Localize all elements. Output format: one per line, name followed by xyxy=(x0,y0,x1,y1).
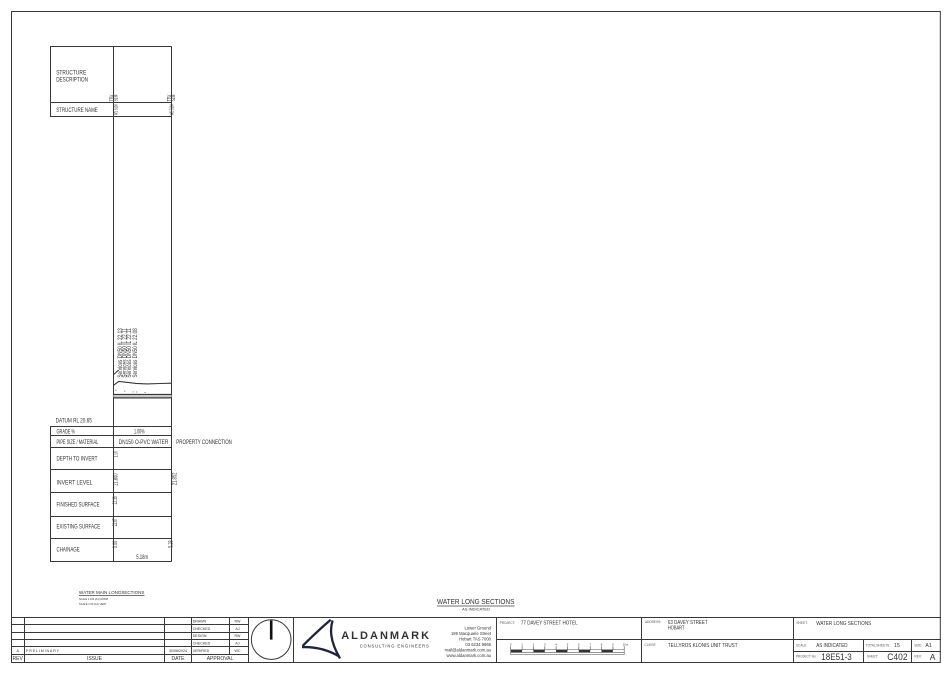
svg-text:W2 SLM: W2 SLM xyxy=(170,104,176,115)
svg-text:CLIENT:: CLIENT: xyxy=(644,643,656,647)
svg-text:AS INDICATED: AS INDICATED xyxy=(816,643,848,649)
svg-text:DATE: DATE xyxy=(172,656,186,662)
svg-text:SCALE 1:100 (A1) HORIZ: SCALE 1:100 (A1) HORIZ xyxy=(79,597,108,601)
svg-text:HOBART: HOBART xyxy=(668,625,685,631)
svg-text:DEPTH TO INVERT: DEPTH TO INVERT xyxy=(57,456,98,462)
svg-text:SHEET:: SHEET: xyxy=(796,621,807,625)
svg-text:77 DAVEY STREET HOTEL: 77 DAVEY STREET HOTEL xyxy=(521,620,578,626)
svg-text:SLM: SLM xyxy=(113,95,119,102)
svg-text:PROJECT:: PROJECT: xyxy=(500,621,516,625)
svg-text:WATER LONG SECTIONS: WATER LONG SECTIONS xyxy=(437,597,514,606)
svg-text:Hobart TAS 7000: Hobart TAS 7000 xyxy=(459,637,492,642)
svg-text:199 Macquarie Street: 199 Macquarie Street xyxy=(451,631,492,636)
svg-text:30/08/2024: 30/08/2024 xyxy=(169,649,187,653)
svg-text:Services DN50 IL 22.08: Services DN50 IL 22.08 xyxy=(133,328,139,378)
svg-text:VERIFIED: VERIFIED xyxy=(193,649,210,653)
svg-text:PIPE SIZE / MATERIAL: PIPE SIZE / MATERIAL xyxy=(57,440,99,446)
svg-text:REV:: REV: xyxy=(914,655,921,659)
svg-text:ADDRESS:: ADDRESS: xyxy=(645,620,661,624)
svg-text:A: A xyxy=(930,652,936,662)
svg-text:RW: RW xyxy=(235,634,242,638)
svg-text:RW: RW xyxy=(235,620,242,624)
svg-text:APPROVAL: APPROVAL xyxy=(207,656,234,662)
svg-text:PROJECT No:: PROJECT No: xyxy=(796,655,817,659)
svg-text:DESIGN: DESIGN xyxy=(193,634,207,638)
svg-text:SHEET:: SHEET: xyxy=(867,655,878,659)
svg-text:SLM: SLM xyxy=(171,95,177,102)
svg-text:INVERT LEVEL: INVERT LEVEL xyxy=(57,480,94,486)
svg-text:0.00: 0.00 xyxy=(113,540,119,548)
svg-text:5.18m: 5.18m xyxy=(136,555,148,561)
svg-text:SCALE 1:50 (A1) VERT: SCALE 1:50 (A1) VERT xyxy=(79,602,107,606)
svg-text:21.800: 21.800 xyxy=(113,473,119,486)
svg-text:TELLYROS KLONIS UNIT TRUST: TELLYROS KLONIS UNIT TRUST xyxy=(668,643,738,649)
svg-text:PROPERTY CONNECTION: PROPERTY CONNECTION xyxy=(176,440,232,446)
svg-text:DRAWN: DRAWN xyxy=(193,620,207,624)
svg-text:www.aldanmark.com.au: www.aldanmark.com.au xyxy=(447,653,492,658)
svg-text:AJ: AJ xyxy=(235,627,239,631)
svg-text:CHECKED: CHECKED xyxy=(193,642,211,646)
svg-text:AS INDICATED: AS INDICATED xyxy=(462,608,491,612)
svg-text:ISSUE: ISSUE xyxy=(87,656,103,662)
svg-text:15: 15 xyxy=(894,643,900,649)
svg-text:EXISTING SURFACE: EXISTING SURFACE xyxy=(57,524,101,530)
svg-text:PRELIMINARY: PRELIMINARY xyxy=(26,649,60,653)
svg-text:10m: 10m xyxy=(623,643,629,647)
svg-text:1.07: 1.07 xyxy=(114,450,120,457)
svg-text:REV: REV xyxy=(13,656,24,662)
svg-text:03 6234 9666: 03 6234 9666 xyxy=(465,642,491,647)
svg-text:18E51-3: 18E51-3 xyxy=(821,652,852,662)
svg-text:ALDANMARK: ALDANMARK xyxy=(341,630,431,642)
svg-text:TOTAL SHEETS:: TOTAL SHEETS: xyxy=(866,643,890,647)
svg-text:WATER LONG SECTIONS: WATER LONG SECTIONS xyxy=(816,621,871,627)
svg-text:WATER MAIN LONGSECTIONS: WATER MAIN LONGSECTIONS xyxy=(79,590,145,596)
svg-text:DATUM RL 20.65: DATUM RL 20.65 xyxy=(56,419,93,425)
svg-text:22.38: 22.38 xyxy=(113,496,119,504)
svg-text:5.18: 5.18 xyxy=(168,540,174,548)
svg-text:STRUCTURE NAME: STRUCTURE NAME xyxy=(56,108,98,114)
svg-text:Lower Ground: Lower Ground xyxy=(464,626,491,631)
svg-text:GRADE %: GRADE % xyxy=(57,429,76,435)
svg-text:DESCRIPTION: DESCRIPTION xyxy=(56,77,88,83)
svg-text:A1: A1 xyxy=(925,643,931,649)
svg-text:22.87: 22.87 xyxy=(113,518,119,526)
svg-text:SIZE:: SIZE: xyxy=(914,644,922,648)
svg-text:1.00%: 1.00% xyxy=(134,429,145,435)
svg-text:WC: WC xyxy=(235,649,241,653)
svg-text:21.852: 21.852 xyxy=(172,472,178,485)
svg-text:CONSULTING ENGINEERS: CONSULTING ENGINEERS xyxy=(360,644,430,649)
svg-text:SCALE:: SCALE: xyxy=(796,644,807,648)
svg-text:STRUCTURE: STRUCTURE xyxy=(56,70,86,76)
svg-text:CHECKED: CHECKED xyxy=(193,627,211,631)
svg-text:C402: C402 xyxy=(887,652,907,662)
svg-text:FINISHED SURFACE: FINISHED SURFACE xyxy=(57,502,100,508)
svg-text:W1 SLM: W1 SLM xyxy=(114,104,120,115)
svg-text:CHAINAGE: CHAINAGE xyxy=(57,548,80,554)
svg-text:mail@aldanmark.com.au: mail@aldanmark.com.au xyxy=(445,648,492,653)
svg-text:DN150 O-PVC WATER: DN150 O-PVC WATER xyxy=(119,440,169,446)
svg-text:AJ: AJ xyxy=(235,642,239,646)
